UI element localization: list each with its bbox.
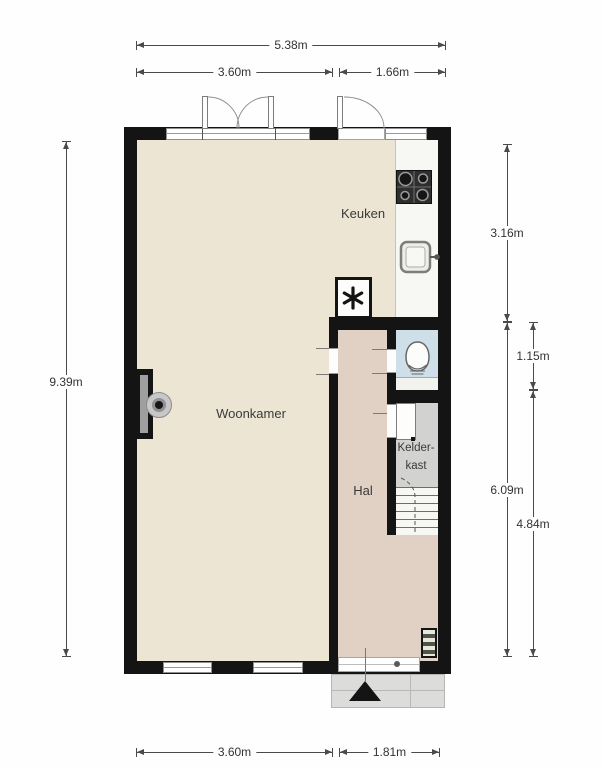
dimension-label: 3.60m <box>213 65 256 79</box>
door-opening-hal-kelderkast <box>387 404 396 438</box>
door-jamb-tick <box>275 128 276 140</box>
floor-plan: Woonkamer Keuken Hal Kelder- kast 5.38m … <box>0 0 602 768</box>
toilet-icon <box>399 340 436 379</box>
dimension-label: 3.60m <box>213 745 256 759</box>
label-hal: Hal <box>339 483 387 498</box>
door-jamb-tick <box>372 349 387 350</box>
window-top-kitchen <box>385 128 427 140</box>
door-jamb-tick <box>316 348 329 349</box>
label-kelderkast-line2: kast <box>394 460 438 472</box>
door-jamb-tick <box>372 373 387 374</box>
window-top-living <box>166 128 310 140</box>
door-swing-arc-icon <box>336 95 386 129</box>
label-woonkamer: Woonkamer <box>201 406 301 421</box>
kitchen-counter <box>395 140 438 318</box>
stoop-divider <box>410 674 411 708</box>
meter-cabinet-icon <box>421 628 437 658</box>
dimension-label: 6.09m <box>485 483 528 497</box>
door-opening-hal-toilet <box>387 349 396 373</box>
french-door-leaf-right <box>268 96 274 129</box>
door-jamb-tick <box>316 374 329 375</box>
window-bottom-right <box>253 662 303 673</box>
door-opening-woonkamer-hal <box>329 348 338 374</box>
door-jamb-tick <box>373 413 387 414</box>
entrance-arrow-icon <box>349 681 381 701</box>
boiler-asterisk-icon <box>335 277 372 319</box>
label-keuken: Keuken <box>328 206 398 221</box>
front-door <box>338 657 420 672</box>
window-bottom-left <box>163 662 212 673</box>
dimension-label: 4.84m <box>511 517 554 531</box>
kitchen-door-leaf <box>337 96 343 129</box>
dimension-label: 9.39m <box>44 375 87 389</box>
dimension-label: 5.38m <box>269 38 312 52</box>
kelderkast-door-leaf <box>396 403 416 440</box>
front-door-handle <box>394 661 400 667</box>
door-jamb-tick <box>202 128 203 140</box>
dimension-label: 1.66m <box>371 65 414 79</box>
door-opening-kitchen <box>338 128 385 140</box>
door-swing-arc-icon <box>201 95 275 129</box>
dimension-label: 1.15m <box>511 349 554 363</box>
label-kelderkast-line1: Kelder- <box>394 442 438 454</box>
stove-burners-icon <box>396 170 432 204</box>
dimension-label: 3.16m <box>485 226 528 240</box>
wall-below-toilet <box>387 390 438 403</box>
french-door-leaf-left <box>202 96 208 129</box>
dimension-label: 1.81m <box>368 745 411 759</box>
kitchen-sink-icon <box>399 240 440 274</box>
asterisk-glyph <box>341 286 365 310</box>
flue-circle-inner <box>155 401 163 409</box>
entrance-line <box>365 648 366 681</box>
